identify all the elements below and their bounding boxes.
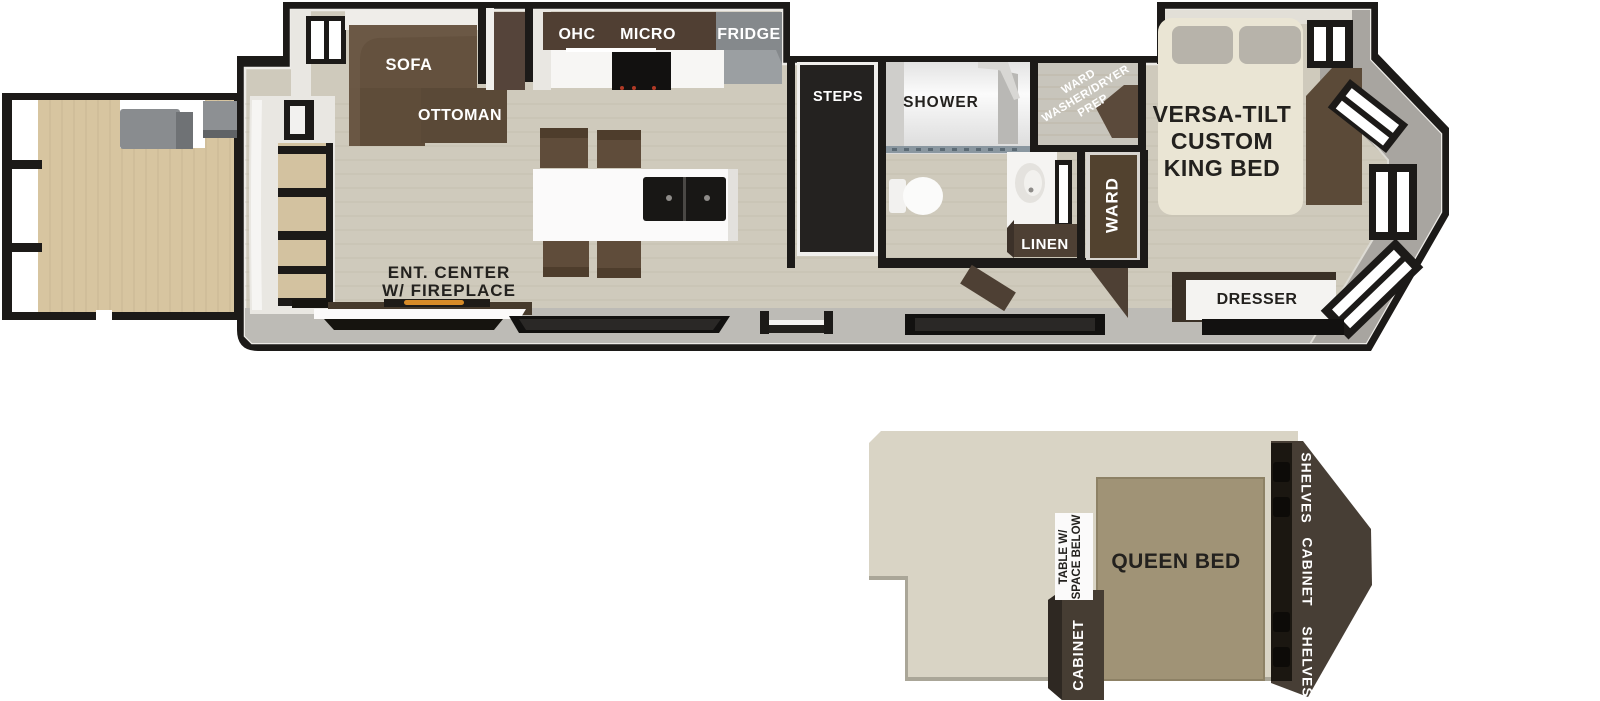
svg-text:LINEN: LINEN	[1021, 236, 1069, 253]
svg-text:TABLE W/: TABLE W/	[1058, 529, 1070, 585]
svg-text:SHOWER: SHOWER	[903, 94, 979, 111]
svg-text:ENT. CENTER: ENT. CENTER	[388, 263, 510, 282]
svg-text:FRIDGE: FRIDGE	[717, 26, 780, 43]
svg-text:OHC: OHC	[558, 26, 595, 43]
svg-text:SHELVES: SHELVES	[1298, 452, 1314, 523]
svg-text:STEPS: STEPS	[813, 89, 863, 105]
svg-text:SOFA: SOFA	[386, 56, 433, 74]
svg-text:MICRO: MICRO	[620, 26, 676, 43]
svg-text:QUEEN BED: QUEEN BED	[1111, 550, 1240, 573]
svg-text:W/ FIREPLACE: W/ FIREPLACE	[382, 281, 516, 300]
svg-text:CUSTOM: CUSTOM	[1171, 128, 1273, 154]
svg-text:VERSA-TILT: VERSA-TILT	[1153, 101, 1292, 127]
svg-text:WARD: WARD	[1102, 177, 1121, 233]
svg-text:CABINET: CABINET	[1299, 537, 1315, 606]
svg-text:SHELVES: SHELVES	[1299, 626, 1315, 697]
svg-text:KING BED: KING BED	[1164, 155, 1280, 181]
svg-text:CABINET: CABINET	[1071, 619, 1087, 690]
svg-text:SPACE BELOW: SPACE BELOW	[1071, 514, 1083, 599]
svg-text:OTTOMAN: OTTOMAN	[418, 107, 502, 124]
svg-text:DRESSER: DRESSER	[1217, 291, 1298, 308]
